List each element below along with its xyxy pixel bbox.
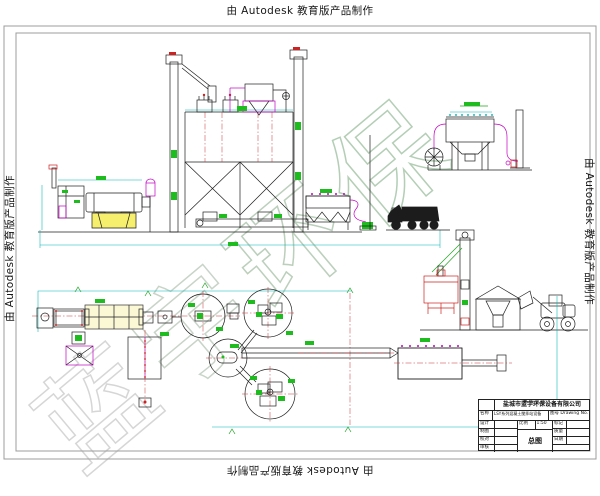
plan-dust-collector <box>394 345 512 379</box>
bucket-elevator-right <box>290 47 307 232</box>
plan-circles <box>181 287 298 422</box>
wheel-loader <box>518 291 575 331</box>
autodesk-watermark-left: 由 Autodesk 教育版产品制作 <box>2 175 17 322</box>
baghouse-fan-stack <box>425 102 532 170</box>
sheet-count-label: 共 张 第 张 <box>479 400 589 450</box>
screw-conveyor <box>196 218 308 227</box>
sheet-frame <box>4 26 596 459</box>
loading-station <box>420 230 588 331</box>
dump-truck <box>386 205 450 230</box>
title-block: 盐城市蓝宇环保设备有限公司 名称 LSY系列混凝土搅拌站设备 图号 Drawin… <box>478 399 590 451</box>
autodesk-watermark-bottom: 由 Autodesk 教育版产品制作 <box>227 463 374 478</box>
autodesk-watermark-right: 由 Autodesk 教育版产品制作 <box>582 158 597 305</box>
autodesk-watermark-top: 由 Autodesk 教育版产品制作 <box>227 3 374 18</box>
pulse-dust-collector <box>306 135 376 230</box>
bucket-elevator-left <box>166 52 210 232</box>
cement-silo <box>185 110 293 228</box>
drawing-sheet: 蓝宇环保 <box>0 0 600 480</box>
drum-dryer-unit <box>58 176 155 232</box>
burner-unit <box>49 165 84 218</box>
plan-machine-row <box>37 305 181 365</box>
silo-top-equipment <box>197 84 290 115</box>
title-block-right-rows: 标记 质量 日期 共 张 第 张 <box>553 421 589 452</box>
plan-bag-filter-grid <box>128 330 161 407</box>
plan-conveyor <box>242 348 398 358</box>
elevation-view <box>38 47 588 331</box>
